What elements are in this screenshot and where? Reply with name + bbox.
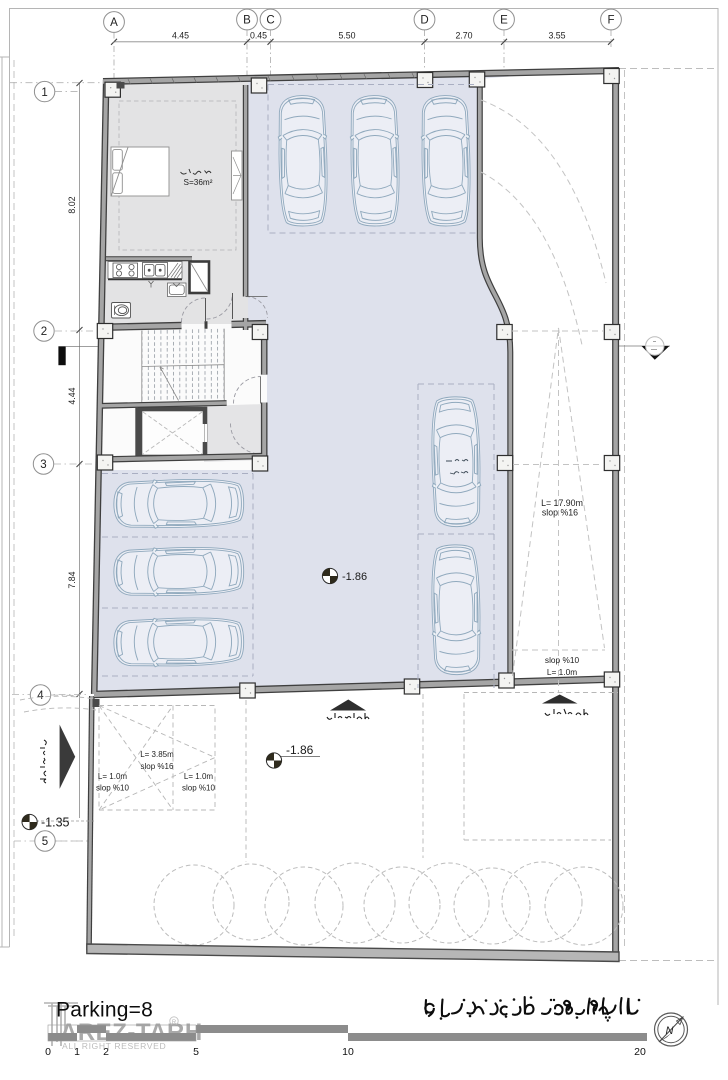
svg-text:A: A [110,17,118,29]
svg-text:L= 1.0m: L= 1.0m [98,772,127,781]
svg-text:8.02: 8.02 [67,196,77,213]
svg-text:N: N [666,1025,674,1037]
svg-text:Parking=8: Parking=8 [56,999,153,1022]
svg-text:5.50: 5.50 [338,30,355,40]
svg-text:slop %10: slop %10 [182,784,215,793]
svg-text:-1.86: -1.86 [342,571,367,583]
svg-text:L= 1.0m: L= 1.0m [184,772,213,781]
svg-text:D: D [420,15,428,27]
svg-text:C: C [266,15,274,27]
svg-text:5: 5 [193,1046,199,1058]
svg-text:4.45: 4.45 [172,30,189,40]
svg-text:S=36m²: S=36m² [184,178,213,187]
svg-text:0: 0 [45,1046,51,1058]
svg-text:1: 1 [74,1046,80,1058]
svg-text:slop %16: slop %16 [141,762,174,771]
svg-text:L= 17.90m: L= 17.90m [541,498,583,508]
svg-text:1: 1 [41,87,47,99]
svg-text:5: 5 [42,836,48,848]
svg-text:20: 20 [634,1046,646,1058]
svg-text:F: F [607,15,614,27]
svg-text:B: B [243,15,251,27]
svg-text:3: 3 [40,459,46,471]
svg-text:10: 10 [342,1046,354,1058]
svg-text:2: 2 [103,1046,109,1058]
svg-text:7.84: 7.84 [67,571,77,588]
svg-text:E: E [500,15,508,27]
svg-text:2: 2 [41,326,47,338]
svg-text:3.55: 3.55 [548,30,565,40]
svg-text:L= 1.0m: L= 1.0m [547,667,577,677]
svg-text:2.70: 2.70 [455,30,472,40]
svg-text:slop %10: slop %10 [545,655,580,665]
svg-text:L= 3.85m: L= 3.85m [140,750,174,759]
svg-text:4: 4 [37,690,44,702]
svg-text:4.44: 4.44 [67,387,77,404]
svg-text:-1.86: -1.86 [286,743,314,757]
svg-text:-1.35: -1.35 [41,816,70,830]
svg-text:slop %16: slop %16 [542,508,578,518]
svg-text:0.45: 0.45 [250,30,267,40]
svg-text:slop %10: slop %10 [96,784,129,793]
